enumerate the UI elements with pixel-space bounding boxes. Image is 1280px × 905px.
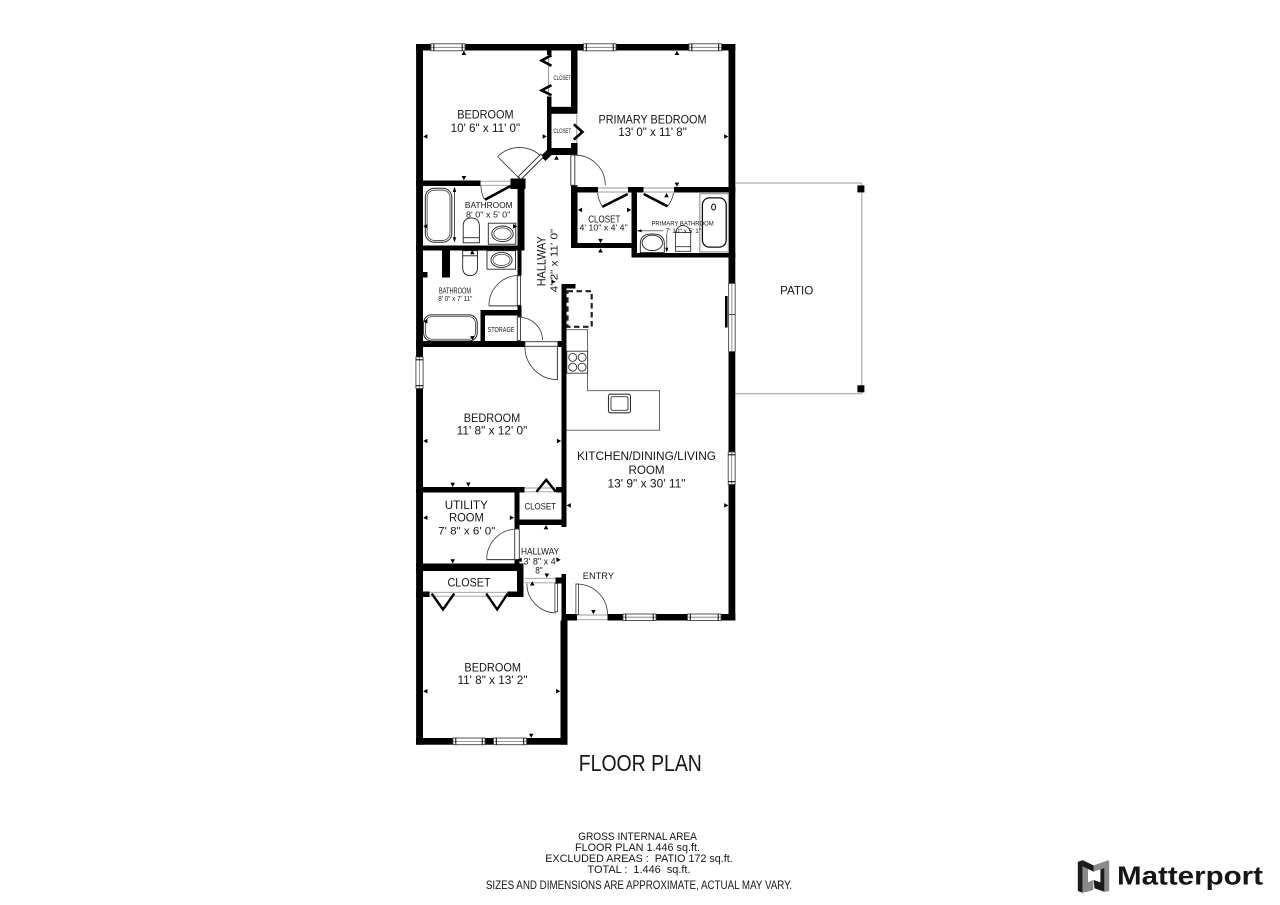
svg-text:HALLWAY: HALLWAY (521, 547, 559, 557)
svg-text:8' 0" x 7' 11": 8' 0" x 7' 11" (438, 294, 473, 303)
svg-text:FLOOR PLAN: FLOOR PLAN (579, 750, 702, 776)
svg-text:KITCHEN/DINING/LIVING: KITCHEN/DINING/LIVING (577, 449, 716, 463)
svg-text:STORAGE: STORAGE (488, 327, 515, 334)
svg-text:7' 10" x 5' 1": 7' 10" x 5' 1" (666, 228, 702, 235)
svg-text:CLOSET: CLOSET (524, 502, 556, 512)
svg-text:13' 0" x 11' 8": 13' 0" x 11' 8" (618, 125, 687, 139)
svg-text:CLOSET: CLOSET (447, 576, 491, 590)
svg-text:CLOSET: CLOSET (554, 75, 572, 82)
svg-text:4' 10" x 4' 4": 4' 10" x 4' 4" (580, 222, 628, 232)
svg-text:Matterport: Matterport (1117, 861, 1263, 891)
svg-text:SIZES AND DIMENSIONS ARE APPRO: SIZES AND DIMENSIONS ARE APPROXIMATE, AC… (486, 880, 792, 892)
svg-text:8": 8" (535, 566, 542, 576)
svg-text:BATHROOM: BATHROOM (465, 201, 513, 210)
svg-text:PRIMARY BATHROOM: PRIMARY BATHROOM (651, 220, 713, 227)
svg-text:ENTRY: ENTRY (583, 570, 615, 581)
svg-text:ROOM: ROOM (629, 463, 665, 477)
svg-text:ROOM: ROOM (449, 510, 484, 524)
svg-text:11' 8" x 13' 2": 11' 8" x 13' 2" (458, 673, 528, 687)
svg-text:10' 6" x 11' 0": 10' 6" x 11' 0" (451, 121, 521, 135)
svg-text:HALLWAY: HALLWAY (537, 236, 549, 286)
svg-text:BEDROOM: BEDROOM (457, 108, 513, 122)
svg-text:4' 2" x 11' 0": 4' 2" x 11' 0" (549, 228, 560, 292)
svg-text:PATIO: PATIO (780, 283, 813, 297)
svg-text:TOTAL : 1.446 sq.ft.: TOTAL : 1.446 sq.ft. (588, 864, 691, 876)
svg-text:13' 9" x 30' 11": 13' 9" x 30' 11" (608, 477, 686, 491)
svg-text:CLOSET: CLOSET (554, 128, 572, 135)
svg-text:11' 8" x 12' 0": 11' 8" x 12' 0" (457, 424, 528, 438)
svg-text:7' 8" x 6' 0": 7' 8" x 6' 0" (438, 526, 495, 538)
svg-text:8' 0" x 5' 0": 8' 0" x 5' 0" (466, 211, 510, 220)
